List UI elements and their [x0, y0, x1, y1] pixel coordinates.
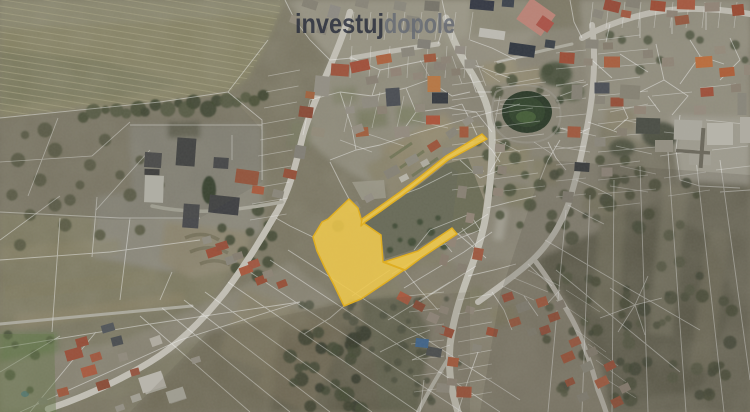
svg-text:dopole: dopole — [384, 8, 455, 39]
svg-text:investuj: investuj — [295, 8, 384, 39]
